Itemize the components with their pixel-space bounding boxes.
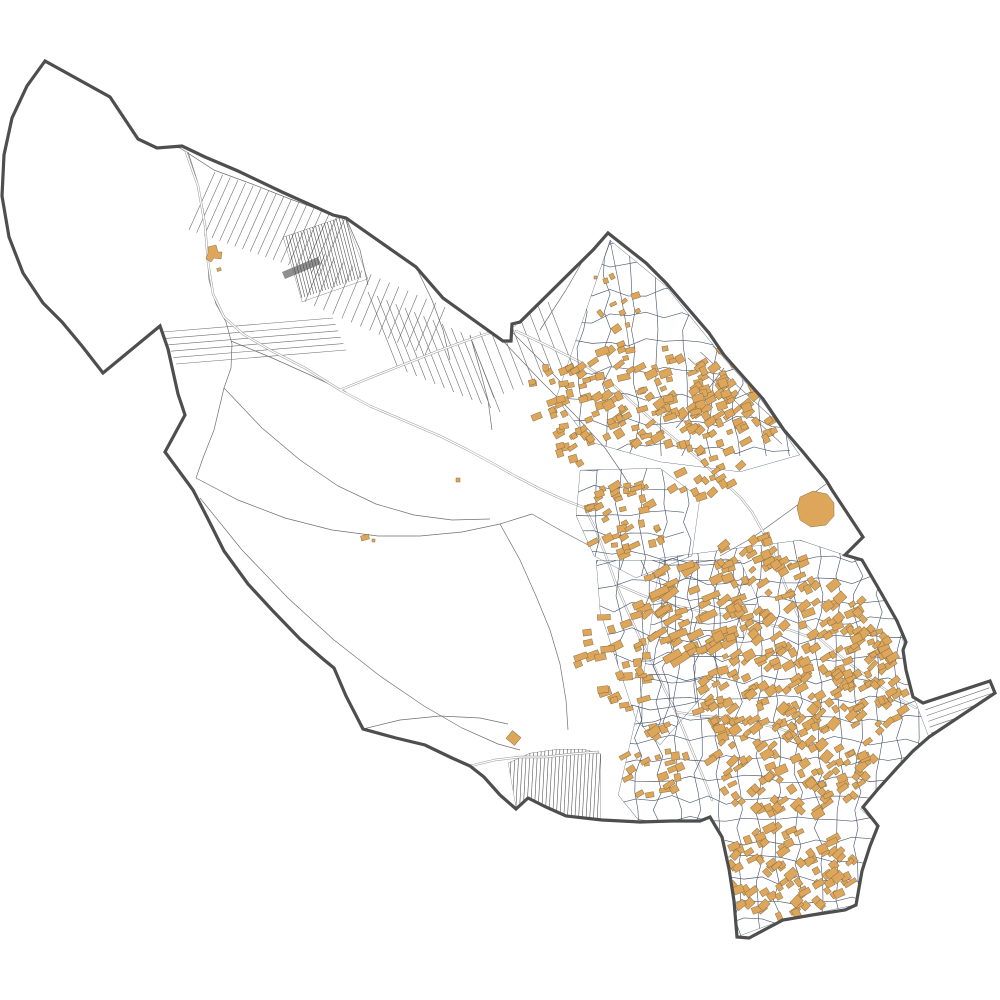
building-footprint xyxy=(622,661,630,669)
building-footprint xyxy=(739,346,753,358)
field-strip-line xyxy=(433,320,463,396)
building-footprint xyxy=(741,673,751,682)
building-footprint xyxy=(660,386,667,392)
dark-field-strip xyxy=(282,257,321,279)
building-footprint xyxy=(809,642,821,653)
building-footprint xyxy=(648,539,656,548)
building-footprint xyxy=(857,596,867,606)
building-footprint xyxy=(549,378,556,384)
field-strip-line xyxy=(360,278,380,326)
building-footprint xyxy=(594,276,597,279)
parcel-line xyxy=(416,267,450,360)
road xyxy=(186,152,585,508)
building-footprint xyxy=(623,488,629,494)
field-strip-line xyxy=(163,318,333,332)
building-footprint xyxy=(764,358,773,367)
building-footprint xyxy=(900,689,909,698)
building-footprint xyxy=(631,292,641,300)
building-footprint xyxy=(628,541,640,550)
building-footprint xyxy=(625,347,635,354)
building-footprint xyxy=(835,758,843,767)
building-footprint xyxy=(768,741,778,750)
building-footprint xyxy=(784,601,797,614)
building-footprint xyxy=(888,675,900,687)
building-footprint xyxy=(738,798,746,806)
field-strip-line xyxy=(442,324,472,400)
building-footprint xyxy=(372,539,375,542)
field-strip-line xyxy=(519,315,543,377)
building-footprint xyxy=(785,396,794,404)
building-footprint xyxy=(744,363,757,375)
building-footprint xyxy=(638,520,645,528)
building-footprint xyxy=(675,607,688,615)
building-footprint xyxy=(674,467,687,478)
building-footprint xyxy=(667,483,678,493)
building-footprint xyxy=(834,744,844,753)
building-footprint xyxy=(633,658,642,667)
building-footprint xyxy=(823,887,831,895)
building-footprint xyxy=(583,639,593,647)
building-footprint xyxy=(722,653,728,659)
building-footprint xyxy=(597,309,605,317)
building-footprint xyxy=(811,598,820,606)
building-footprint xyxy=(726,429,733,435)
building-footprint xyxy=(728,780,738,788)
building-footprint xyxy=(603,433,611,441)
building-footprint xyxy=(635,308,641,314)
building-footprint xyxy=(786,784,797,795)
building-footprint xyxy=(687,628,704,641)
building-footprint xyxy=(592,391,604,402)
building-footprint xyxy=(820,749,834,763)
building-footprint xyxy=(644,573,655,581)
field-strip-line xyxy=(396,304,426,380)
field-strip-line xyxy=(166,324,336,338)
building-footprint xyxy=(716,400,728,411)
field-strip-line xyxy=(168,331,338,345)
building-footprint xyxy=(619,751,631,760)
building-footprint xyxy=(665,749,671,755)
building-footprint xyxy=(642,652,650,659)
parcel-line xyxy=(500,524,568,730)
field-strip-line xyxy=(470,336,494,398)
building-footprint xyxy=(542,364,548,371)
building-footprint xyxy=(622,774,633,783)
building-footprint xyxy=(796,858,806,868)
field-strip-line xyxy=(548,302,572,364)
building-footprint xyxy=(631,425,639,432)
building-footprint xyxy=(592,410,600,417)
building-footprint xyxy=(723,446,735,456)
field-strip-line xyxy=(461,332,491,408)
parcel-line xyxy=(188,152,232,478)
parcel-line xyxy=(196,478,532,536)
building-footprint xyxy=(360,534,369,541)
building-footprint xyxy=(808,692,816,700)
building-footprint xyxy=(602,516,610,523)
building-footprint xyxy=(575,427,582,435)
building-footprint xyxy=(794,572,806,581)
building-footprint xyxy=(729,351,739,361)
municipality-map xyxy=(0,0,1000,1000)
building-footprint xyxy=(456,478,460,482)
building-footprint xyxy=(657,771,669,781)
building-footprint xyxy=(634,641,643,648)
building-footprint xyxy=(611,323,622,334)
building-footprint xyxy=(675,354,685,365)
building-footprint xyxy=(688,585,700,595)
building-footprint xyxy=(587,538,599,547)
building-footprint xyxy=(747,361,758,370)
building-footprint xyxy=(739,436,752,446)
building-footprint xyxy=(560,410,568,418)
building-footprint xyxy=(621,298,628,304)
building-footprint xyxy=(597,614,610,620)
building-footprint xyxy=(788,562,800,571)
building-footprint xyxy=(707,487,718,498)
building-footprint xyxy=(610,301,617,307)
parcel-line xyxy=(470,335,492,430)
building-footprint xyxy=(558,380,568,387)
building-footprint xyxy=(654,378,662,386)
building-footprint xyxy=(619,506,626,512)
field-strip-line xyxy=(480,332,504,394)
building-footprint xyxy=(583,629,592,636)
building-footprint xyxy=(840,703,849,712)
building-footprint xyxy=(623,355,629,361)
building-footprint xyxy=(578,395,588,403)
building-footprint xyxy=(595,372,605,381)
building-footprint xyxy=(728,723,742,737)
building-footprint xyxy=(775,892,783,900)
building-footprint xyxy=(609,273,615,280)
building-footprint xyxy=(587,357,599,367)
field-strips-layer xyxy=(163,172,995,733)
building-footprint xyxy=(716,696,724,704)
field-strip-line xyxy=(171,337,341,351)
building-footprint xyxy=(582,377,590,383)
building-footprint xyxy=(645,419,656,429)
field-strip-line xyxy=(416,303,436,351)
building-footprint xyxy=(720,786,729,796)
building-footprint xyxy=(626,765,636,775)
road xyxy=(340,325,515,390)
building-footprint xyxy=(630,611,643,620)
building-footprint xyxy=(666,377,673,383)
building-footprint xyxy=(639,506,650,514)
building-footprint xyxy=(674,773,681,781)
building-footprint xyxy=(749,566,756,573)
field-strip-line xyxy=(538,306,562,368)
building-footprint xyxy=(639,494,646,502)
parcel-line xyxy=(363,716,508,729)
building-footprint xyxy=(206,245,222,262)
field-strip-line xyxy=(173,344,343,358)
parcel-line xyxy=(532,514,588,545)
field-strip-line xyxy=(368,292,398,368)
building-footprint xyxy=(671,752,680,761)
building-footprint xyxy=(794,877,803,887)
building-footprint xyxy=(735,460,746,470)
building-footprint xyxy=(761,698,769,706)
building-footprint xyxy=(611,543,618,548)
building-footprint xyxy=(663,394,674,403)
building-footprint xyxy=(774,764,789,777)
building-footprint xyxy=(663,439,673,449)
building-footprint xyxy=(559,423,569,430)
building-footprint xyxy=(848,601,856,608)
building-footprint xyxy=(635,790,644,798)
field-strip-line xyxy=(351,274,371,322)
building-footprint xyxy=(597,685,609,693)
building-footprint xyxy=(692,707,704,715)
building-footprint xyxy=(607,625,615,634)
building-footprint xyxy=(217,267,222,271)
field-strip-line xyxy=(407,299,427,347)
building-footprint xyxy=(613,428,625,440)
building-footprint xyxy=(734,349,744,359)
building-footprint xyxy=(757,578,770,589)
building-footprint xyxy=(781,416,788,423)
building-footprint xyxy=(601,645,615,652)
building-footprint xyxy=(797,769,805,778)
building-footprint xyxy=(662,346,668,352)
parcel-line xyxy=(231,341,346,392)
building-footprint xyxy=(603,278,609,284)
building-footprint xyxy=(745,347,759,360)
building-footprint xyxy=(757,356,770,367)
building-footprint xyxy=(767,381,776,392)
building-footprint xyxy=(506,731,521,746)
building-footprint xyxy=(767,368,775,376)
building-footprint xyxy=(655,754,661,760)
building-footprint xyxy=(624,483,631,488)
building-footprint xyxy=(814,690,826,701)
building-footprint xyxy=(645,792,654,798)
building-footprint xyxy=(686,445,693,452)
municipal-boundary-outline xyxy=(2,61,995,938)
field-strip-line xyxy=(927,694,991,716)
parcel-line xyxy=(200,498,520,750)
field-strip-line xyxy=(176,350,346,364)
building-footprint xyxy=(864,670,872,678)
building-footprint xyxy=(531,412,543,421)
building-footprint xyxy=(579,383,587,389)
building-footprint xyxy=(748,535,759,546)
cadastral-map-stage xyxy=(0,0,1000,1000)
building-footprint xyxy=(637,695,651,703)
building-footprint xyxy=(731,799,739,807)
building-footprint xyxy=(798,621,807,630)
building-footprint xyxy=(770,631,783,642)
building-footprint xyxy=(843,759,851,766)
building-footprint xyxy=(733,341,742,350)
building-footprint xyxy=(633,362,647,373)
building-footprint xyxy=(603,508,612,516)
parcel-line xyxy=(224,388,490,520)
building-footprint xyxy=(812,866,821,875)
building-footprint xyxy=(702,590,721,602)
building-footprint xyxy=(664,722,671,728)
building-footprint xyxy=(782,659,795,671)
building-footprint xyxy=(585,416,594,423)
building-footprint xyxy=(776,776,784,784)
building-footprint xyxy=(797,491,834,527)
field-strip-line xyxy=(405,308,435,384)
building-footprint xyxy=(765,589,772,596)
building-footprint xyxy=(679,486,687,493)
building-footprint xyxy=(728,341,738,351)
building-footprint xyxy=(716,439,724,447)
building-footprint xyxy=(625,322,630,327)
field-strip-line xyxy=(425,307,445,355)
building-footprint xyxy=(694,445,705,456)
parcel-line xyxy=(610,240,630,352)
field-strip-line xyxy=(370,283,390,331)
field-strip-line xyxy=(377,296,407,372)
building-footprint xyxy=(875,727,884,736)
